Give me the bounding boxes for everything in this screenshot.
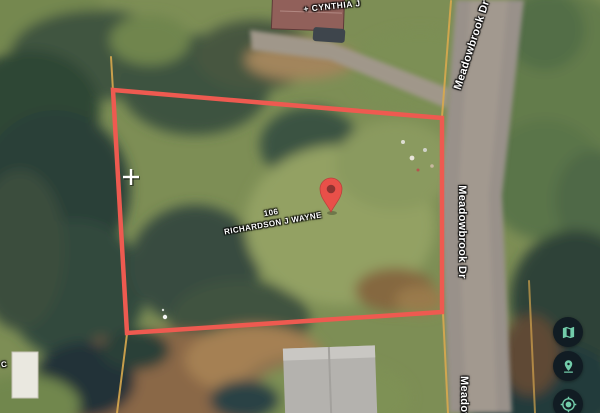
house-roof (283, 345, 377, 413)
satellite-imagery (0, 0, 600, 413)
pin-drop-button[interactable] (553, 351, 583, 381)
vehicle (313, 27, 346, 43)
pin-drop-icon (561, 359, 576, 374)
shed (12, 352, 38, 398)
building-roof-top (271, 0, 344, 31)
map-viewport[interactable]: + CYNTHIA J 106 RICHARDSON J WAYNE Meado… (0, 0, 600, 413)
my-location-button[interactable] (553, 389, 583, 413)
my-location-icon (560, 396, 577, 413)
map-icon (561, 325, 576, 340)
map-layers-button[interactable] (553, 317, 583, 347)
